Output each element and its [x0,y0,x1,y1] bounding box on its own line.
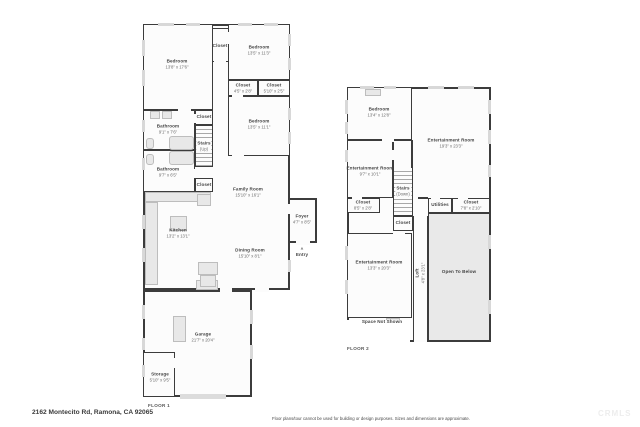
window-marker [488,235,491,249]
room-label-f2-closet-stairs: Closet [396,220,411,226]
window-marker [288,34,291,46]
room-label-f2-space-not-shown: Space Not Shown [362,319,402,325]
door-opening [220,288,232,292]
room-label-foyer: Foyer4'7" x 8'5" [293,214,311,225]
window-marker [142,70,145,86]
water-heater-icon [173,316,186,342]
step-landing [200,275,216,287]
window-marker [142,158,145,170]
window-marker [488,100,491,114]
room-f2-ent-bottom-box [347,233,412,318]
kitchen-counter [145,202,158,285]
room-f2-open-to-below-box [428,213,490,341]
room-label-stairs-up: Stairs(Up) [196,141,211,152]
window-marker [250,345,253,359]
window-marker [384,86,396,89]
toilet-icon [146,154,154,165]
window-marker [142,305,145,319]
door-opening [174,358,177,368]
window-marker [345,280,348,294]
room-label-kitchen: Kitchen13'2" x 13'1" [167,228,190,239]
door-opening [255,288,269,292]
window-marker [142,365,145,377]
room-label-family-room: Family Room15'10" x 16'1" [233,187,263,198]
room-label-bedroom-2: Bedroom13'5" x 11'3" [248,45,271,56]
window-marker [345,150,348,162]
floorplan-page: Bedroom13'8" x 17'6" Closet Bedroom13'5"… [0,0,640,427]
window-marker [360,86,374,89]
toilet-icon [146,138,154,149]
door-opening [287,204,293,214]
property-address: 2162 Montecito Rd, Ramona, CA 92065 [32,409,153,416]
step-landing [198,262,218,275]
room-label-bedroom-3: Bedroom13'5" x 11'1" [248,119,271,130]
room-label-f2-loft: Loft4'8" x 23'1" [415,263,426,284]
window-marker [345,100,348,114]
window-marker [142,248,145,262]
window-marker [186,23,200,26]
room-label-closet-stairs-bottom: Closet [197,182,212,188]
window-marker [142,338,145,350]
room-label-dining-room: Dining Room15'10" x 8'1" [235,248,265,259]
window-marker [458,86,474,89]
dresser-icon [365,89,381,96]
window-marker [142,120,145,132]
disclaimer-text: Floor plans/tour cannot be used for buil… [228,416,514,421]
room-label-f2-stairs: Stairs(Down) [395,186,411,197]
door-opening [178,108,191,112]
window-marker [488,130,491,144]
door-opening [214,60,226,63]
window-marker [288,132,291,144]
window-marker [345,122,348,134]
refrigerator-icon [197,194,211,206]
floor2-tag: FLOOR 2 [347,346,369,351]
window-marker [488,165,491,177]
floor1-tag: FLOOR 1 [148,403,170,408]
window-marker [250,310,253,324]
garage-door-opening [180,394,226,399]
room-label-f2-closet-right: Closet7'8" x 2'10" [461,200,482,211]
room-label-bedroom-1: Bedroom13'8" x 17'6" [166,59,189,70]
room-label-f2-ent-big: Entertainment Room19'3" x 23'3" [428,138,475,149]
room-label-f2-ent-small: Entertainment Room9'7" x 10'1" [347,166,394,177]
entry-arrow-icon: ▲ [300,246,304,251]
room-label-f2-open-to-below: Open To Below [442,269,476,275]
window-marker [345,246,348,260]
window-marker [142,215,145,229]
window-marker [142,40,145,56]
room-label-garage: Garage21'7" x 20'4" [192,332,215,343]
room-label-closet-top: Closet [213,43,228,49]
room-label-closet-b: Closet5'10" x 2'5" [264,83,285,94]
door-opening [382,138,394,142]
window-marker [288,260,291,272]
room-label-closet-stairs-top: Closet [197,114,212,120]
room-label-entry: Entry [296,252,308,258]
room-label-bathroom-2: Bathroom9'7" x 6'5" [157,167,180,178]
door-opening [393,232,405,236]
door-opening [194,169,197,178]
room-label-f2-ent-bottom: Entertainment Room13'3" x 20'3" [356,260,403,271]
window-marker [238,23,252,26]
room-label-f2-utilities: Utilities [431,202,449,208]
wall-f2-entbig-left [411,140,413,168]
door-opening [296,241,310,245]
wall-f2-utilities-row [418,197,428,199]
room-label-f2-bedroom: Bedroom13'4" x 12'8" [368,107,391,118]
window-marker [264,23,278,26]
room-label-closet-a: Closet4'5" x 2'8" [234,83,252,94]
window-marker [488,300,491,314]
door-opening [392,150,395,160]
door-opening [431,197,440,200]
room-label-bathroom-1: Bathroom9'1" x 7'6" [157,124,180,135]
room-label-storage: Storage5'10" x 9'5" [150,372,171,383]
door-opening [232,154,244,158]
window-marker [288,58,291,70]
vanity-sink-icon [150,111,160,119]
room-label-f2-closet-left: Closet8'5" x 2'8" [354,200,372,211]
bathtub-icon [169,136,194,150]
window-marker [428,86,444,89]
bathtub-icon [169,151,194,165]
window-marker [288,108,291,120]
window-marker [158,23,174,26]
vanity-sink-icon [162,111,172,119]
door-opening [232,94,243,98]
crmls-watermark: CRMLS [598,409,631,418]
